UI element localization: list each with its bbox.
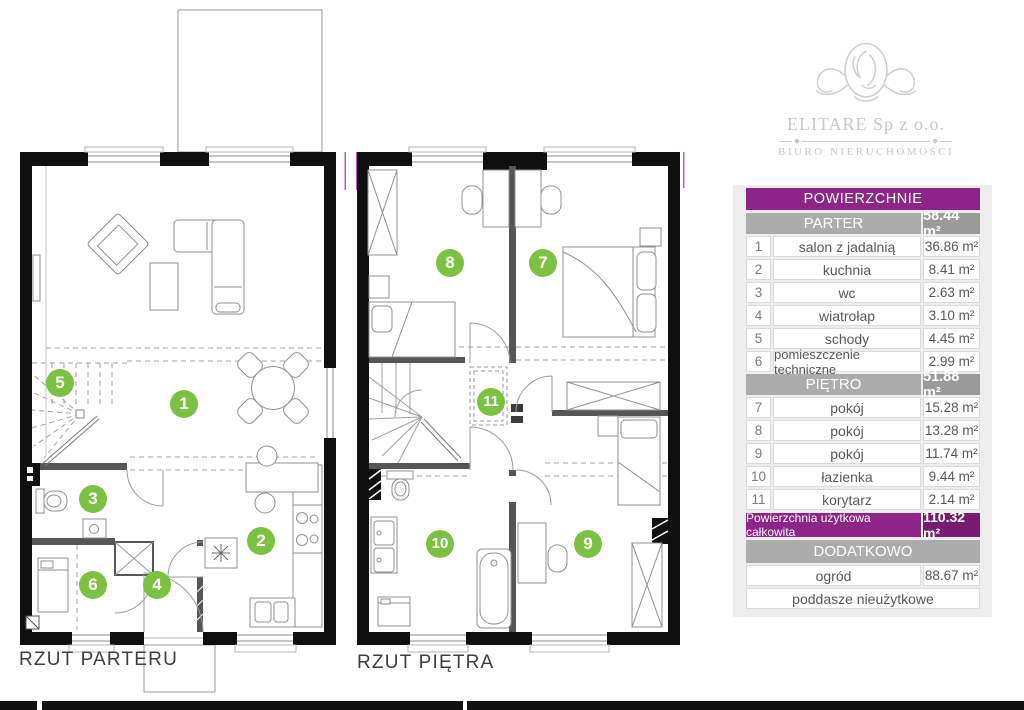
room-badge-2: 2 (247, 527, 275, 555)
section-name: DODATKOWO (746, 540, 980, 563)
logo-ornament-icon (796, 36, 936, 112)
section-name: PARTER (746, 213, 921, 234)
row-number: 1 (746, 236, 771, 257)
logo-divider (780, 139, 952, 143)
row-name: poddasze nieużytkowe (746, 588, 980, 609)
row-area: 4.45 m² (923, 328, 980, 349)
bottom-crop-strip (0, 701, 1024, 710)
technical-room-fixtures (26, 558, 68, 629)
row-number: 4 (746, 305, 771, 326)
section-area: 51.88 m² (923, 374, 980, 395)
row-number: 5 (746, 328, 771, 349)
row-name: wiatrołap (773, 305, 921, 326)
table-row: 3 wc 2.63 m² (746, 282, 980, 303)
row-number: 8 (746, 420, 771, 441)
row-area: 13.28 m² (923, 420, 980, 441)
room-badge-9: 9 (574, 530, 602, 558)
upper-floor-caption: RZUT PIĘTRA (357, 652, 494, 674)
room-badge-1: 1 (170, 390, 198, 418)
row-area: 2.14 m² (923, 489, 980, 510)
section-header-pietro: PIĘTRO 51.88 m² (746, 374, 980, 395)
print-artifact-lines (345, 152, 358, 190)
floor-plan-upper (357, 147, 685, 652)
row-area: 36.86 m² (923, 236, 980, 257)
row-number: 11 (746, 489, 771, 510)
stair-cut-line (42, 410, 99, 466)
room-badge-8: 8 (436, 249, 464, 277)
row-number: 3 (746, 282, 771, 303)
row-number: 6 (746, 351, 771, 372)
row-area: 88.67 m² (923, 565, 980, 586)
ground-floor-caption: RZUT PARTERU (19, 649, 178, 671)
table-row: 1 salon z jadalnią 36.86 m² (746, 236, 980, 257)
dining-set (235, 350, 311, 426)
room-badge-3: 3 (79, 485, 107, 513)
row-area: 8.41 m² (923, 259, 980, 280)
row-name: pokój (773, 397, 921, 418)
winder-stairs (369, 363, 422, 463)
door-jamb-marks (511, 404, 523, 423)
row-name: korytarz (773, 489, 921, 510)
room-badge-4: 4 (143, 571, 171, 599)
company-subtitle: BIURO NIERUCHOMOŚCI (778, 146, 954, 158)
row-number: 7 (746, 397, 771, 418)
section-name: PIĘTRO (746, 374, 921, 395)
company-logo: ELITARE Sp z o.o. BIURO NIERUCHOMOŚCI (778, 36, 954, 158)
total-row: Powierzchnia użytkowa całkowita 110.32 m… (746, 513, 980, 537)
row-area: 11.74 m² (923, 443, 980, 464)
room9-furniture (518, 416, 662, 627)
table-row: poddasze nieużytkowe (746, 588, 980, 609)
table-row: ogród 88.67 m² (746, 565, 980, 586)
section-area: 58.44 m² (923, 213, 980, 234)
total-label: Powierzchnia użytkowa całkowita (746, 513, 921, 537)
row-name: łazienka (773, 466, 921, 487)
table-row: 11 korytarz 2.14 m² (746, 489, 980, 510)
room7-furniture (515, 170, 661, 410)
row-area: 2.63 m² (923, 282, 980, 303)
row-area: 3.10 m² (923, 305, 980, 326)
table-row: 8 pokój 13.28 m² (746, 420, 980, 441)
print-artifact-line (683, 152, 685, 188)
section-header-parter: PARTER 58.44 m² (746, 213, 980, 234)
table-row: 7 pokój 15.28 m² (746, 397, 980, 418)
floor-plan-ground (20, 10, 358, 692)
table-row: 2 kuchnia 8.41 m² (746, 259, 980, 280)
row-name: pomieszczenie techniczne (773, 351, 921, 372)
row-name: ogród (746, 565, 921, 586)
row-area: 15.28 m² (923, 397, 980, 418)
shaft-box (115, 542, 153, 575)
room-badge-7: 7 (529, 249, 557, 277)
living-room-furniture (87, 213, 244, 314)
table-row: 9 pokój 11.74 m² (746, 443, 980, 464)
floorplan-sheet: 1 2 3 4 5 6 7 8 9 10 11 RZUT PARTERU RZU… (0, 0, 1024, 710)
room-badge-5: 5 (46, 369, 74, 397)
row-number: 2 (746, 259, 771, 280)
row-name: pokój (773, 420, 921, 441)
table-row: 4 wiatrołap 3.10 m² (746, 305, 980, 326)
terrace-outline (178, 10, 322, 152)
total-area: 110.32 m² (923, 513, 980, 537)
upper-stair-cut-line (421, 419, 461, 461)
row-number: 9 (746, 443, 771, 464)
areas-table: POWIERZCHNIE PARTER 58.44 m² 1 salon z j… (746, 188, 980, 611)
row-area: 9.44 m² (923, 466, 980, 487)
room-badge-11: 11 (477, 388, 505, 416)
areas-table-card: POWIERZCHNIE PARTER 58.44 m² 1 salon z j… (733, 185, 992, 617)
row-name: pokój (773, 443, 921, 464)
row-name: wc (773, 282, 921, 303)
table-row: 10 łazienka 9.44 m² (746, 466, 980, 487)
row-number: 10 (746, 466, 771, 487)
room-badge-10: 10 (426, 530, 454, 558)
row-name: kuchnia (773, 259, 921, 280)
row-name: salon z jadalnią (773, 236, 921, 257)
meter-box (24, 463, 40, 486)
section-header-dodatkowo: DODATKOWO (746, 540, 980, 563)
company-name: ELITARE Sp z o.o. (778, 114, 954, 135)
room-badge-6: 6 (79, 571, 107, 599)
